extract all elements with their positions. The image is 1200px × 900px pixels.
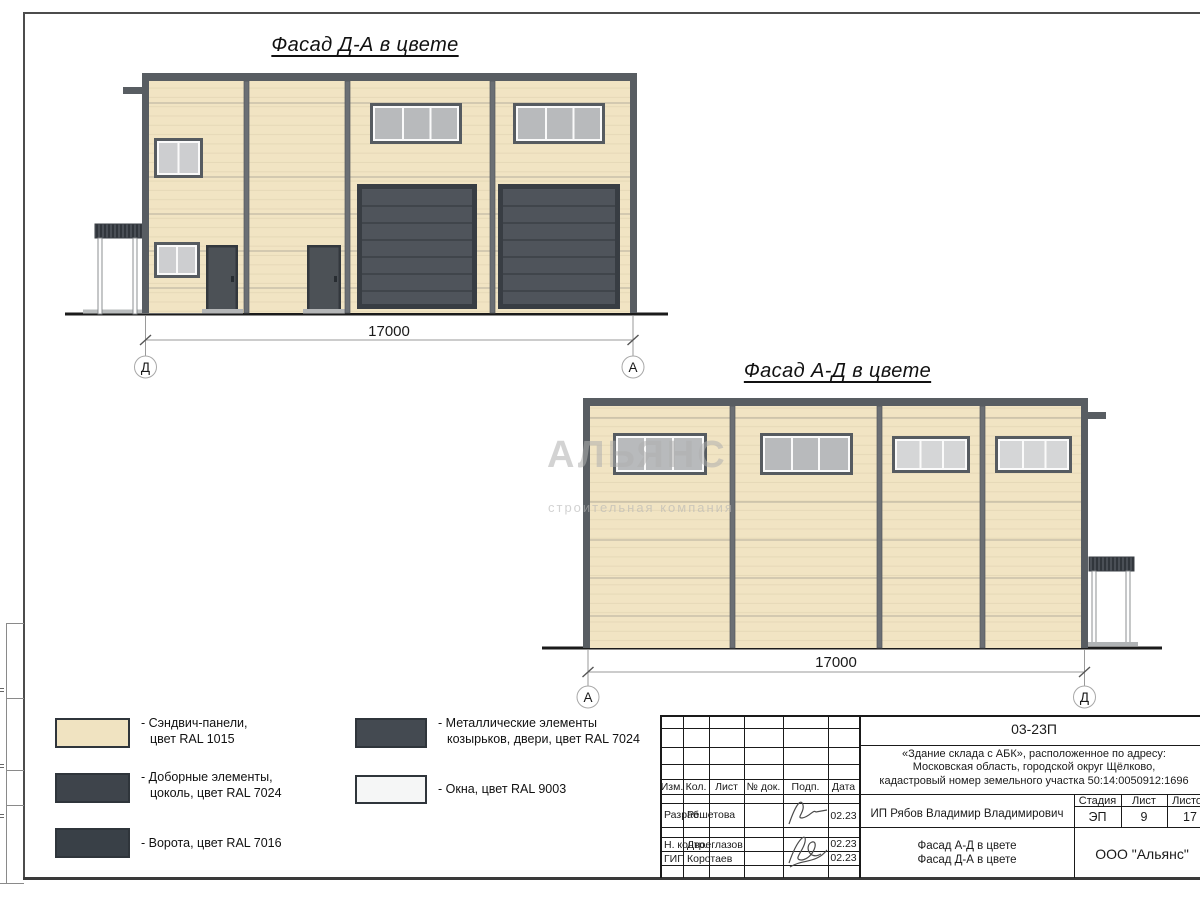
legend-label-windows: - Окна, цвет RAL 9003 bbox=[438, 782, 566, 798]
signature-developer bbox=[786, 796, 829, 828]
gate-2 bbox=[498, 184, 620, 309]
legend-label-panels: - Сэндвич-панели,цвет RAL 1015 bbox=[141, 716, 247, 747]
frame-top-border bbox=[23, 12, 1200, 14]
sheets-label: Листов bbox=[1168, 795, 1200, 807]
ribbon-window-4 bbox=[995, 436, 1072, 473]
row-ncontrol-name: Двоеглазов bbox=[687, 839, 743, 851]
dimension-da: 17000 Д А bbox=[135, 316, 645, 378]
project-description: «Здание склада с АБК», расположенное по … bbox=[860, 748, 1200, 788]
legend-swatch-gates bbox=[55, 828, 130, 858]
legend-label-gates: - Ворота, цвет RAL 7016 bbox=[141, 836, 282, 852]
facade-ad-title: Фасад А-Д в цвете bbox=[725, 360, 950, 383]
facade-da-title: Фасад Д-А в цвете bbox=[250, 34, 480, 57]
row-ncontrol-date: 02.23 bbox=[828, 838, 859, 850]
doc-number: 03-23П bbox=[860, 721, 1200, 737]
row-gip-name: Коротаев bbox=[687, 853, 732, 865]
col-data: Дата bbox=[828, 781, 859, 793]
row-developer-name: Решетова bbox=[687, 809, 735, 821]
canopy-right bbox=[1086, 557, 1138, 646]
drawing-sheet: { "document": { "facade_da": {"title": "… bbox=[0, 0, 1200, 900]
legend-label-trim: - Доборные элементы,цоколь, цвет RAL 702… bbox=[141, 770, 282, 801]
legend-swatch-metal bbox=[355, 718, 427, 748]
ribbon-window-2 bbox=[513, 103, 605, 144]
dimension-value: 17000 bbox=[368, 323, 410, 340]
ribbon-window-2 bbox=[760, 433, 853, 475]
axis-marker-right: А bbox=[628, 360, 637, 375]
gate-1 bbox=[357, 184, 477, 309]
legend-swatch-windows bbox=[355, 775, 427, 804]
ribbon-window-3 bbox=[892, 436, 970, 473]
axis-marker-right: Д bbox=[1080, 690, 1089, 705]
col-kol: Кол. bbox=[683, 781, 709, 793]
dimension-value: 17000 bbox=[815, 654, 857, 671]
row-gip-role: ГИП bbox=[664, 853, 685, 865]
col-izm: Изм. bbox=[659, 781, 685, 793]
legend-swatch-panels bbox=[55, 718, 130, 748]
dimension-ad: 17000 А Д bbox=[577, 650, 1096, 708]
small-window-upper bbox=[154, 138, 203, 178]
frame-bottom-border bbox=[23, 877, 1200, 880]
sheet-label: Лист bbox=[1122, 795, 1166, 807]
row-developer-date: 02.23 bbox=[828, 810, 859, 822]
axis-marker-left: А bbox=[583, 690, 592, 705]
col-doc: № док. bbox=[744, 781, 783, 793]
stage-label: Стадия bbox=[1075, 795, 1120, 807]
sheet-content-title: Фасад А-Д в цвете Фасад Д-А в цвете bbox=[861, 839, 1073, 867]
legend-label-metal: - Металлические элементыкозырьков, двери… bbox=[438, 716, 640, 747]
stage-value: ЭП bbox=[1075, 810, 1120, 824]
axis-marker-left: Д bbox=[141, 360, 150, 375]
canopy-left bbox=[95, 224, 142, 314]
watermark-text: АЛЬЯНС bbox=[547, 434, 728, 477]
row-gip-date: 02.23 bbox=[828, 852, 859, 864]
company-name: ООО "Альянс" bbox=[1076, 846, 1200, 862]
frame-left-border bbox=[23, 12, 25, 878]
sheets-value: 17 bbox=[1168, 810, 1200, 824]
client-name: ИП Рябов Владимир Владимирович bbox=[861, 808, 1073, 820]
legend-swatch-trim bbox=[55, 773, 130, 803]
sheet-value: 9 bbox=[1122, 810, 1166, 824]
small-window-lower bbox=[154, 242, 200, 278]
col-list: Лист bbox=[709, 781, 744, 793]
entry-door-2 bbox=[303, 245, 345, 314]
col-podp: Подп. bbox=[783, 781, 828, 793]
watermark-subtext: строительная компания bbox=[548, 500, 734, 515]
facade-da-drawing: 17000 Д А bbox=[60, 70, 680, 390]
signature-control-gip bbox=[784, 831, 829, 869]
ribbon-window-1 bbox=[370, 103, 462, 144]
entry-door-1 bbox=[202, 245, 243, 314]
